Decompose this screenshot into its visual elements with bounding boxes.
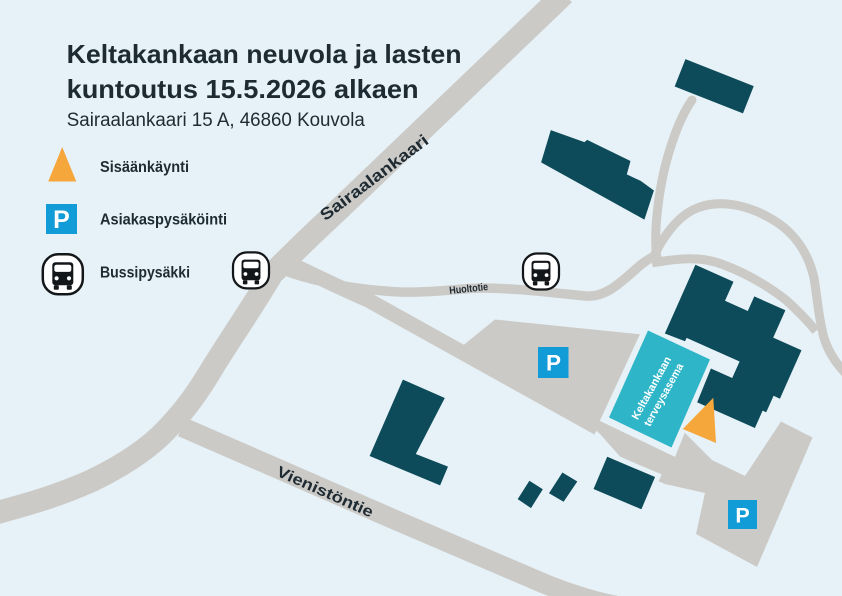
svg-text:Bussipysäkki: Bussipysäkki bbox=[100, 265, 190, 282]
svg-text:Keltakankaan neuvola ja lasten: Keltakankaan neuvola ja lasten bbox=[67, 39, 462, 69]
svg-text:Sairaalankaari 15 A, 46860 Kou: Sairaalankaari 15 A, 46860 Kouvola bbox=[67, 110, 365, 131]
svg-text:P: P bbox=[53, 206, 70, 234]
svg-text:P: P bbox=[546, 351, 561, 376]
svg-text:Asiakaspysäköinti: Asiakaspysäköinti bbox=[100, 212, 227, 229]
svg-text:Sisäänkäynti: Sisäänkäynti bbox=[100, 159, 189, 176]
svg-text:kuntoutus 15.5.2026 alkaen: kuntoutus 15.5.2026 alkaen bbox=[67, 74, 419, 104]
svg-text:P: P bbox=[735, 504, 749, 528]
